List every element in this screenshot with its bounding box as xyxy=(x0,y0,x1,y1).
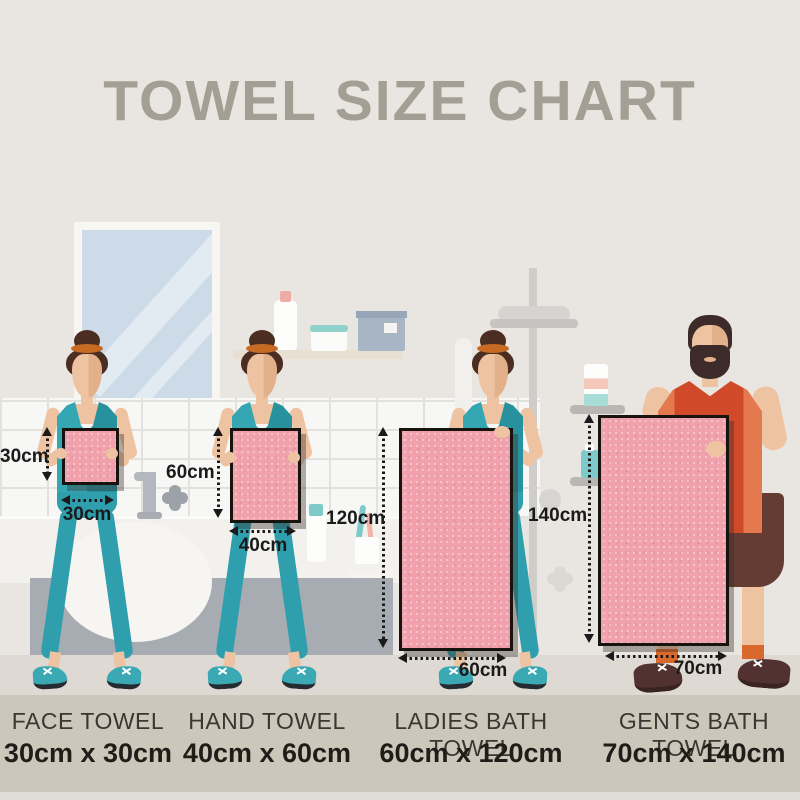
hand xyxy=(106,448,118,459)
sneaker-icon xyxy=(106,665,142,690)
height-arrow-ladies-bath-towel xyxy=(378,428,388,647)
ladies-bath-towel xyxy=(399,428,513,651)
sneaker-icon xyxy=(207,665,243,690)
hand-towel xyxy=(230,428,301,523)
face xyxy=(478,354,508,398)
shower-plate-icon xyxy=(490,319,578,328)
sneaker-icon xyxy=(32,665,68,690)
size-gents-bath-towel: 70cm x 140cm xyxy=(579,738,800,769)
hand xyxy=(494,426,510,438)
width-label-ladies-bath-towel: 60cm xyxy=(459,660,508,682)
leg xyxy=(742,577,764,655)
width-label-hand-towel: 40cm xyxy=(239,535,288,557)
leg xyxy=(40,509,78,660)
width-label-face-towel: 30cm xyxy=(63,504,112,526)
headband xyxy=(477,344,509,353)
beard xyxy=(690,345,730,379)
sock xyxy=(742,645,764,659)
sneaker-icon xyxy=(512,665,548,690)
headband xyxy=(246,344,278,353)
height-arrow-gents-bath-towel xyxy=(584,415,594,642)
hand xyxy=(55,448,67,459)
storage-box-label-icon xyxy=(384,323,397,333)
headband xyxy=(71,344,103,353)
flower-decal-icon xyxy=(552,571,568,587)
shoe-icon xyxy=(737,657,791,690)
hand xyxy=(288,452,300,463)
faucet-knob-icon xyxy=(167,490,183,506)
bottom-strip xyxy=(0,792,800,800)
height-label-hand-towel: 60cm xyxy=(166,462,210,484)
height-label-face-towel: 30cm xyxy=(0,446,39,468)
striped-tumbler-icon xyxy=(584,364,608,406)
shower-caddy-shelf xyxy=(570,405,625,414)
height-label-gents-bath-towel: 140cm xyxy=(528,505,582,527)
leg xyxy=(96,509,134,660)
size-hand-towel: 40cm x 60cm xyxy=(152,738,382,769)
size-ladies-bath-towel: 60cm x 120cm xyxy=(356,738,586,769)
page-title: TOWEL SIZE CHART xyxy=(0,68,800,134)
face xyxy=(247,354,277,398)
hand xyxy=(224,452,236,463)
lotion-cap-icon xyxy=(280,291,291,302)
height-label-ladies-bath-towel: 120cm xyxy=(326,508,376,530)
width-label-gents-bath-towel: 70cm xyxy=(674,658,723,680)
towel-size-chart: TOWEL SIZE CHART xyxy=(0,0,800,800)
sneaker-icon xyxy=(281,665,317,690)
mouth xyxy=(704,357,716,362)
toothbrush-cup-icon xyxy=(355,537,379,564)
storage-box-lid-icon xyxy=(356,311,407,318)
hand xyxy=(706,441,726,457)
face xyxy=(72,354,102,398)
caption-hand-towel: HAND TOWEL xyxy=(152,708,382,735)
